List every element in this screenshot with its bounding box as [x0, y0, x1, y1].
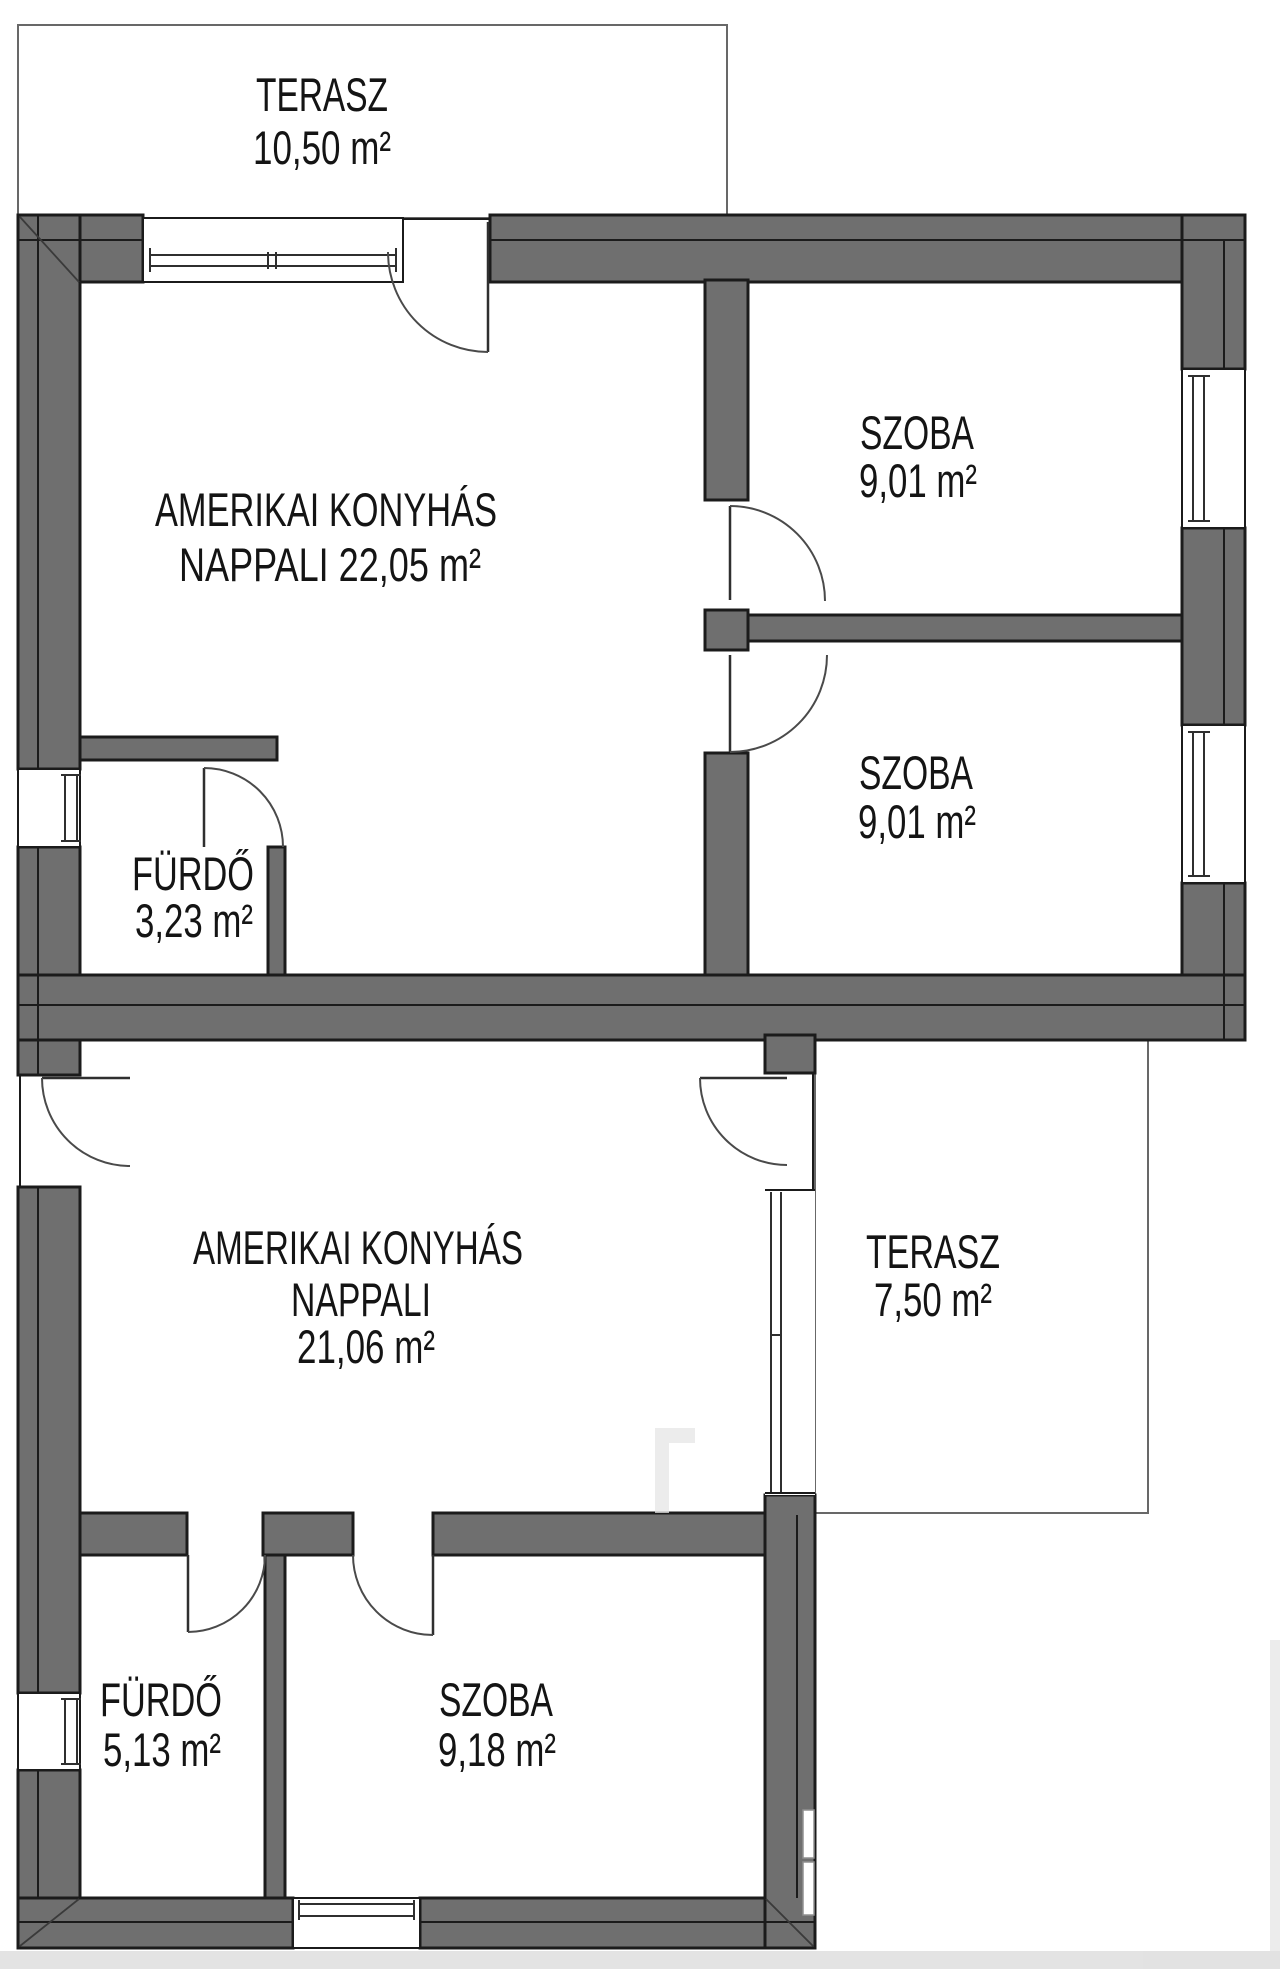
door-szoba-felso [730, 506, 825, 601]
room-name: AMERIKAI KONYHÁS [193, 1221, 523, 1274]
window-frame [18, 1693, 80, 1770]
room-name: SZOBA [860, 406, 974, 459]
door-furdo-felso [204, 768, 283, 847]
window-szoba-also [293, 1898, 420, 1948]
wall-segment-unit-divider [18, 975, 1245, 1040]
window-frame [18, 769, 80, 847]
door-arc [42, 1078, 130, 1166]
room-area: 9,01 m² [859, 454, 977, 507]
wall-segment [705, 280, 748, 500]
wall-segment [18, 1770, 80, 1898]
door-furdo-also [188, 1555, 265, 1632]
room-name: NAPPALI [291, 1273, 431, 1326]
door-arc [730, 506, 825, 601]
room-area: 5,13 m² [103, 1723, 221, 1776]
room-label-terasz-also: TERASZ 7,50 m² [866, 1225, 1000, 1326]
scan-edge-right [1270, 1640, 1280, 1951]
watermark [655, 1428, 669, 1513]
wall-segment [433, 1513, 765, 1555]
scan-edge-bottom [0, 1951, 1280, 1969]
wall-segment [1182, 215, 1245, 369]
door-arc [730, 655, 827, 752]
room-name: SZOBA [859, 746, 973, 799]
wall-segment [18, 1187, 80, 1693]
window-frame [1182, 369, 1245, 528]
room-label-szoba-felso: SZOBA 9,01 m² [859, 406, 977, 507]
window-furdo-also [18, 1693, 81, 1770]
window-right-bottom-small [803, 1810, 814, 1915]
window-frame [143, 218, 403, 282]
window-terrace-door-glass [765, 1073, 815, 1495]
room-name: SZOBA [439, 1673, 553, 1726]
door-szoba-kozepso [730, 655, 827, 752]
room-area: 21,06 m² [297, 1320, 435, 1373]
room-label-nappali-felso: AMERIKAI KONYHÁS NAPPALI 22,05 m² [155, 483, 497, 591]
wall-segment [263, 1513, 353, 1555]
room-label-szoba-kozepso: SZOBA 9,01 m² [858, 746, 976, 848]
door-szoba-also [353, 1555, 433, 1635]
door-arc [353, 1555, 433, 1635]
door-arc [188, 1555, 265, 1632]
room-label-furdo-felso: FÜRDŐ 3,23 m² [132, 847, 254, 947]
room-area: 9,01 m² [858, 795, 976, 848]
wall-segment [80, 1513, 187, 1555]
wall-segment [490, 215, 1245, 282]
wall-segment [268, 847, 285, 975]
door-entrance-bottom [42, 1078, 130, 1166]
window-frame [293, 1898, 420, 1948]
room-name: FÜRDŐ [100, 1673, 222, 1726]
window-frame [803, 1862, 814, 1915]
window-frame [1182, 725, 1245, 883]
room-label-szoba-also: SZOBA 9,18 m² [438, 1673, 556, 1776]
wall-segment [18, 1040, 80, 1075]
door-jamb [18, 1075, 80, 1187]
room-label-terasz-felso: TERASZ 10,50 m² [253, 68, 391, 174]
wall-segment [705, 610, 748, 650]
wall-segment [765, 1035, 815, 1073]
door-terrace-bottom [700, 1078, 787, 1165]
door-jamb [403, 218, 490, 282]
window-frame [803, 1810, 814, 1858]
floor-plan: TERASZ 10,50 m² AMERIKAI KONYHÁS NAPPALI… [0, 0, 1280, 1969]
room-name: TERASZ [866, 1225, 1000, 1278]
wall-segment [18, 215, 80, 769]
room-name: AMERIKAI KONYHÁS [155, 483, 497, 536]
door-arc [700, 1078, 787, 1165]
wall-segment [705, 753, 748, 975]
wall-segment [80, 737, 277, 760]
room-name: FÜRDŐ [132, 847, 254, 900]
room-name: TERASZ [256, 68, 388, 121]
room-label-nappali-also: AMERIKAI KONYHÁS NAPPALI 21,06 m² [193, 1221, 523, 1373]
window-furdo-felso [18, 769, 81, 847]
window-terrace-top [143, 218, 403, 282]
window-frame [765, 1190, 815, 1495]
window-szoba-kozepso [1182, 725, 1245, 883]
wall-segment [748, 615, 1182, 641]
room-area: 9,18 m² [438, 1723, 556, 1776]
wall-segment [265, 1555, 285, 1898]
wall-segment [1182, 528, 1245, 725]
door-openings [18, 218, 815, 1187]
watermark [669, 1428, 695, 1443]
door-arc [204, 768, 283, 847]
wall-segment [18, 847, 80, 975]
room-area: 7,50 m² [874, 1273, 992, 1326]
room-area: 3,23 m² [135, 894, 253, 947]
room-label-furdo-also: FÜRDŐ 5,13 m² [100, 1673, 222, 1776]
room-area: NAPPALI 22,05 m² [179, 538, 481, 591]
room-area: 10,50 m² [253, 121, 391, 174]
window-szoba-felso [1182, 369, 1245, 528]
